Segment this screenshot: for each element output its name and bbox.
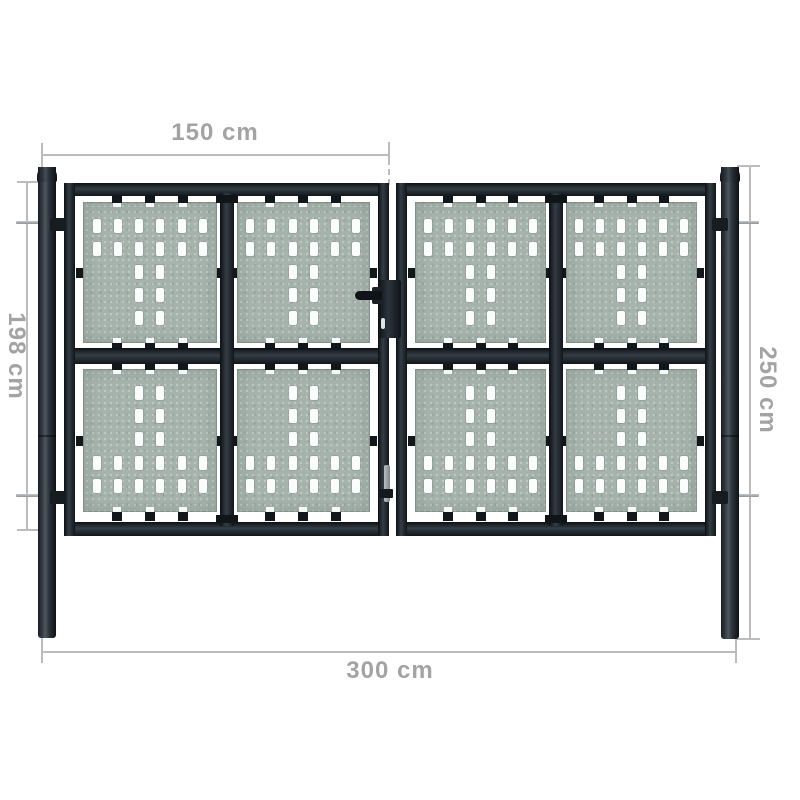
post-cap	[720, 167, 740, 182]
dimension-bottom-label: 300 cm	[346, 657, 433, 685]
panel-hole	[638, 219, 646, 233]
panel-hole	[352, 219, 360, 233]
gate-door-left	[64, 183, 389, 536]
panel-hole	[445, 219, 453, 233]
panel-hole	[466, 479, 474, 493]
gate-panel	[566, 202, 697, 343]
panel-hole	[617, 386, 625, 400]
panel-hole	[289, 311, 297, 325]
panel-hole	[617, 242, 625, 256]
panel-hole	[659, 456, 667, 470]
panel-hole	[289, 479, 297, 493]
panel-hole	[156, 479, 164, 493]
panel-hole	[445, 242, 453, 256]
panel-hole	[331, 456, 339, 470]
panel-hole	[156, 288, 164, 302]
panel-hole	[424, 479, 432, 493]
hinge-bracket	[712, 218, 728, 231]
panel-hole	[156, 456, 164, 470]
panel-hole	[114, 242, 122, 256]
panel-hole	[93, 456, 101, 470]
panel-hole	[246, 456, 254, 470]
panel-hole	[310, 456, 318, 470]
panel-clip	[508, 512, 518, 521]
panel-hole	[289, 386, 297, 400]
perforation-grid	[418, 381, 543, 498]
panel-hole	[508, 242, 516, 256]
panel-hole	[178, 456, 186, 470]
panel-hole	[93, 479, 101, 493]
panel-hole	[445, 456, 453, 470]
panel-side-clip	[408, 268, 415, 278]
panel-hole	[114, 219, 122, 233]
panel-hole	[331, 219, 339, 233]
panel-hole	[199, 456, 207, 470]
panel-hole	[466, 288, 474, 302]
panel-clip	[443, 512, 453, 521]
gate-door-right	[396, 183, 716, 536]
gate-panel	[237, 369, 371, 512]
panel-hole	[617, 265, 625, 279]
panel-hole	[93, 219, 101, 233]
panel-hole	[487, 432, 495, 446]
panel-clip	[145, 512, 155, 521]
panel-hole	[246, 219, 254, 233]
perforation-grid	[569, 214, 694, 329]
panel-clip	[627, 512, 637, 521]
panel-hole	[638, 456, 646, 470]
dimension-left-label: 198 cm	[2, 312, 30, 399]
keyhole	[381, 318, 385, 329]
dimension-right-label: 250 cm	[753, 346, 781, 433]
panel-hole	[680, 456, 688, 470]
gate-panel	[415, 369, 546, 512]
panel-hole	[466, 242, 474, 256]
panel-hole	[135, 311, 143, 325]
panel-hole	[487, 219, 495, 233]
panel-hole	[659, 479, 667, 493]
panel-hole	[617, 456, 625, 470]
panel-side-clip	[76, 268, 83, 278]
panel-hole	[178, 219, 186, 233]
panel-hole	[680, 242, 688, 256]
panel-hole	[135, 456, 143, 470]
panel-hole	[659, 219, 667, 233]
panel-hole	[508, 456, 516, 470]
panel-hole	[487, 479, 495, 493]
panel-hole	[529, 242, 537, 256]
panel-hole	[199, 219, 207, 233]
panel-hole	[529, 219, 537, 233]
panel-hole	[289, 409, 297, 423]
panel-hole	[529, 456, 537, 470]
panel-hole	[135, 265, 143, 279]
panel-hole	[617, 219, 625, 233]
panel-hole	[199, 242, 207, 256]
panel-hole	[310, 386, 318, 400]
panel-hole	[246, 479, 254, 493]
panel-side-clip	[76, 436, 83, 446]
hinge-bracket	[50, 218, 66, 231]
panel-hole	[617, 479, 625, 493]
panel-hole	[289, 432, 297, 446]
panel-side-clip	[370, 268, 377, 278]
panel-hole	[114, 456, 122, 470]
gate-panel	[566, 369, 697, 512]
fence-post-left	[38, 167, 56, 638]
gate-panel	[83, 202, 217, 343]
panel-hole	[310, 288, 318, 302]
panel-hole	[352, 456, 360, 470]
panel-hole	[289, 265, 297, 279]
panel-hole	[466, 311, 474, 325]
panel-hole	[156, 386, 164, 400]
panel-clip	[112, 512, 122, 521]
panel-hole	[466, 219, 474, 233]
panel-hole	[135, 219, 143, 233]
mullion-bracket	[216, 195, 238, 203]
panel-side-clip	[697, 436, 704, 446]
panel-hole	[156, 409, 164, 423]
panel-hole	[267, 242, 275, 256]
panel-clip	[178, 512, 188, 521]
panel-hole	[156, 311, 164, 325]
panel-hole	[487, 288, 495, 302]
mullion-bracket	[216, 515, 238, 523]
hinge-bracket	[50, 491, 66, 504]
panel-clip	[298, 512, 308, 521]
panel-hole	[617, 409, 625, 423]
panel-hole	[638, 432, 646, 446]
panel-hole	[331, 242, 339, 256]
perforation-grid	[569, 381, 694, 498]
gate-panel	[415, 202, 546, 343]
panel-hole	[575, 456, 583, 470]
panel-hole	[466, 432, 474, 446]
panel-clip	[476, 512, 486, 521]
panel-hole	[575, 219, 583, 233]
door-center-mullion	[220, 193, 234, 526]
panel-hole	[156, 432, 164, 446]
panel-hole	[310, 311, 318, 325]
panel-hole	[93, 242, 101, 256]
panel-hole	[638, 479, 646, 493]
panel-hole	[156, 265, 164, 279]
panel-hole	[466, 265, 474, 279]
panel-hole	[596, 456, 604, 470]
panel-hole	[331, 479, 339, 493]
panel-hole	[289, 456, 297, 470]
door-stile-right	[705, 183, 716, 536]
post-seam	[721, 435, 739, 437]
panel-hole	[617, 432, 625, 446]
panel-hole	[638, 409, 646, 423]
panel-hole	[178, 479, 186, 493]
panel-hole	[424, 219, 432, 233]
perforation-grid	[240, 214, 368, 329]
panel-side-clip	[370, 436, 377, 446]
panel-hole	[617, 288, 625, 302]
panel-side-clip	[408, 436, 415, 446]
panel-hole	[596, 479, 604, 493]
gate-dimension-diagram: 150 cm 198 cm 250 cm 300 cm	[0, 0, 800, 800]
panel-hole	[424, 456, 432, 470]
panel-hole	[267, 456, 275, 470]
panel-hole	[638, 386, 646, 400]
panel-hole	[289, 219, 297, 233]
panel-hole	[680, 219, 688, 233]
panel-hole	[424, 242, 432, 256]
panel-hole	[114, 479, 122, 493]
panel-hole	[352, 242, 360, 256]
panel-hole	[135, 288, 143, 302]
door-stile-left	[396, 183, 407, 536]
panel-hole	[487, 265, 495, 279]
lock-handle	[355, 291, 382, 300]
panel-hole	[596, 219, 604, 233]
panel-hole	[310, 219, 318, 233]
panel-hole	[289, 242, 297, 256]
panel-hole	[638, 311, 646, 325]
panel-clip	[265, 512, 275, 521]
panel-hole	[466, 456, 474, 470]
post-seam	[38, 435, 56, 437]
gate-panel	[83, 369, 217, 512]
panel-hole	[508, 479, 516, 493]
panel-hole	[267, 219, 275, 233]
perforation-grid	[418, 214, 543, 329]
panel-hole	[310, 479, 318, 493]
door-stile-left	[64, 183, 75, 536]
panel-hole	[466, 386, 474, 400]
panel-hole	[529, 479, 537, 493]
panel-hole	[466, 409, 474, 423]
panel-clip	[659, 512, 669, 521]
panel-hole	[135, 432, 143, 446]
panel-hole	[199, 479, 207, 493]
door-center-mullion	[549, 193, 563, 526]
panel-hole	[156, 219, 164, 233]
perforation-grid	[86, 381, 214, 498]
panel-hole	[680, 479, 688, 493]
panel-hole	[638, 288, 646, 302]
drop-bolt-bracket	[380, 489, 393, 498]
panel-hole	[575, 479, 583, 493]
panel-hole	[617, 311, 625, 325]
panel-hole	[638, 242, 646, 256]
panel-clip	[594, 512, 604, 521]
panel-hole	[246, 242, 254, 256]
panel-hole	[487, 456, 495, 470]
panel-hole	[487, 242, 495, 256]
panel-hole	[659, 242, 667, 256]
panel-hole	[310, 409, 318, 423]
fence-post-right	[721, 167, 739, 639]
panel-hole	[135, 242, 143, 256]
post-cap	[37, 167, 57, 182]
panel-hole	[445, 479, 453, 493]
gate-panel	[237, 202, 371, 343]
panel-hole	[178, 242, 186, 256]
perforation-grid	[240, 381, 368, 498]
dimension-top-label: 150 cm	[171, 119, 258, 147]
panel-hole	[487, 409, 495, 423]
panel-hole	[638, 265, 646, 279]
panel-hole	[135, 409, 143, 423]
panel-hole	[596, 242, 604, 256]
panel-hole	[135, 479, 143, 493]
hinge-bracket	[712, 491, 728, 504]
panel-hole	[267, 479, 275, 493]
panel-clip	[331, 512, 341, 521]
panel-hole	[135, 386, 143, 400]
mullion-bracket	[545, 515, 567, 523]
panel-hole	[575, 242, 583, 256]
panel-hole	[487, 311, 495, 325]
mullion-bracket	[545, 195, 567, 203]
panel-hole	[310, 432, 318, 446]
panel-hole	[352, 479, 360, 493]
panel-side-clip	[697, 268, 704, 278]
panel-hole	[289, 288, 297, 302]
panel-hole	[310, 265, 318, 279]
panel-hole	[487, 386, 495, 400]
perforation-grid	[86, 214, 214, 329]
panel-hole	[508, 219, 516, 233]
panel-hole	[310, 242, 318, 256]
panel-hole	[156, 242, 164, 256]
